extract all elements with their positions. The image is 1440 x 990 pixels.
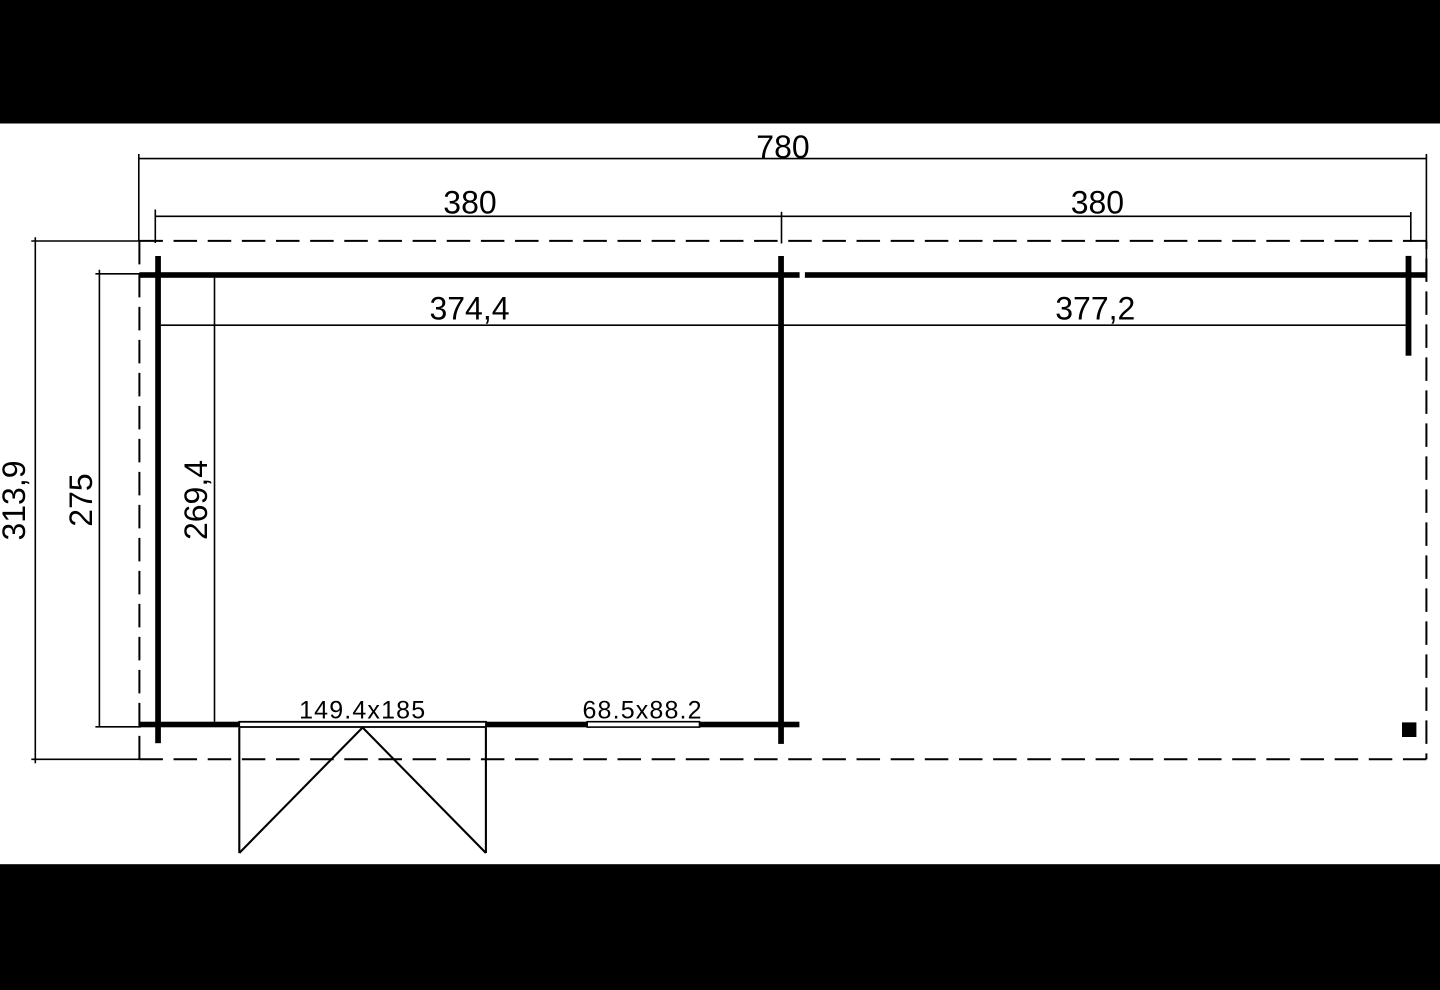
svg-text:780: 780 [756,129,809,165]
svg-text:380: 380 [443,185,496,221]
svg-text:275: 275 [63,473,99,526]
svg-text:313,9: 313,9 [0,460,32,540]
svg-text:377,2: 377,2 [1055,290,1135,326]
svg-text:374,4: 374,4 [429,290,509,326]
svg-text:68.5x88.2: 68.5x88.2 [583,697,703,725]
svg-text:149.4x185: 149.4x185 [299,697,426,725]
svg-text:380: 380 [1071,185,1124,221]
svg-text:269,4: 269,4 [178,460,214,540]
